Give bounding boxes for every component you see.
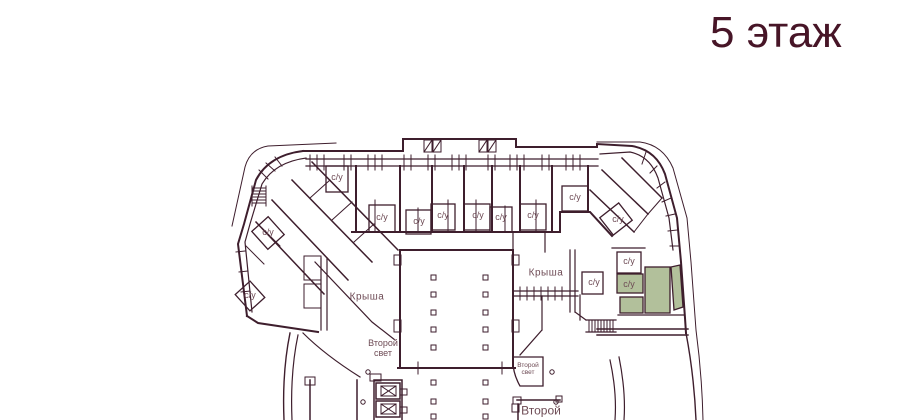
bathroom-label: с/у — [588, 278, 600, 288]
vent-shafts — [424, 140, 496, 152]
bathroom-label: с/у — [331, 173, 343, 183]
bathroom-label: с/у — [612, 215, 624, 225]
bathroom-label: с/у — [527, 211, 539, 221]
bathroom-label-highlighted: с/у — [623, 280, 635, 290]
bathroom-label: с/у — [244, 291, 256, 301]
elevator-shafts — [370, 374, 407, 420]
bathroom-label: с/у — [623, 257, 635, 267]
bathroom-label: с/у — [376, 213, 388, 223]
bathroom-label: с/у — [569, 193, 581, 203]
unit-divider-walls — [356, 166, 588, 232]
second-light-line2: свет — [521, 369, 534, 376]
second-light-label: Второй свет — [368, 339, 398, 359]
floor-plan-page: 5 этаж — [0, 0, 900, 420]
bathroom-rooms — [235, 166, 641, 311]
second-light-line2: свет — [374, 348, 392, 358]
floor-plan-drawing — [0, 0, 900, 420]
bathroom-label: с/у — [413, 217, 425, 227]
second-light-line1: Второй — [368, 338, 398, 348]
bathroom-label: с/у — [437, 211, 449, 221]
roof-label-left: Крыша — [350, 292, 385, 303]
second-light-label-cut: Второй — [521, 404, 561, 417]
second-light-label-small: Второй свет — [517, 363, 539, 377]
bathroom-label: с/у — [472, 211, 484, 221]
roof-label-right: Крыша — [529, 268, 564, 279]
bathroom-label: с/у — [262, 228, 274, 238]
atrium-walls — [394, 250, 519, 374]
bathroom-label: с/у — [495, 213, 507, 223]
